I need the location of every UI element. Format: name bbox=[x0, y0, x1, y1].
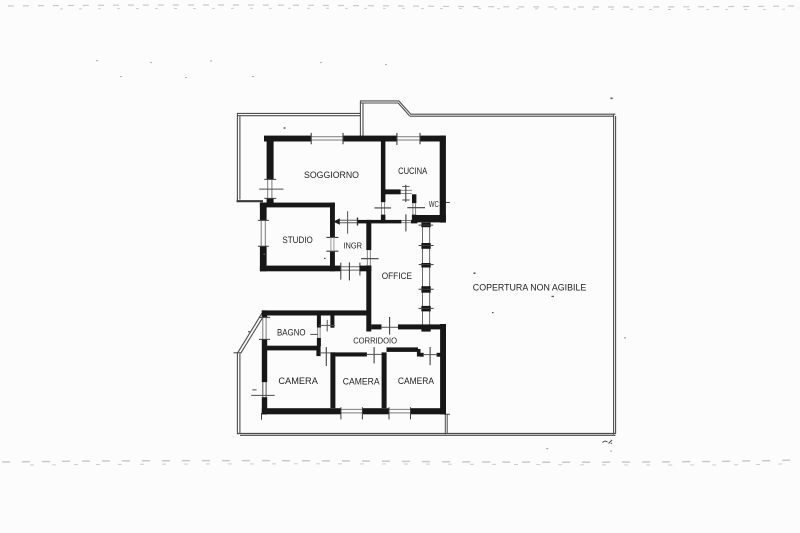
svg-text:INGR: INGR bbox=[343, 242, 362, 251]
svg-text:CAMERA: CAMERA bbox=[343, 376, 380, 387]
svg-text:CAMERA: CAMERA bbox=[278, 376, 318, 387]
svg-text:CUCINA: CUCINA bbox=[398, 166, 427, 176]
svg-text:STUDIO: STUDIO bbox=[282, 235, 312, 246]
svg-text:CORRIDOIO: CORRIDOIO bbox=[353, 336, 397, 346]
svg-text:CAMERA: CAMERA bbox=[398, 376, 435, 387]
svg-text:BAGNO: BAGNO bbox=[277, 327, 306, 337]
svg-text:WC: WC bbox=[429, 200, 439, 209]
svg-text:COPERTURA NON AGIBILE: COPERTURA NON AGIBILE bbox=[473, 283, 587, 293]
svg-text:OFFICE: OFFICE bbox=[382, 271, 412, 282]
svg-text:SOGGIORNO: SOGGIORNO bbox=[304, 170, 359, 180]
